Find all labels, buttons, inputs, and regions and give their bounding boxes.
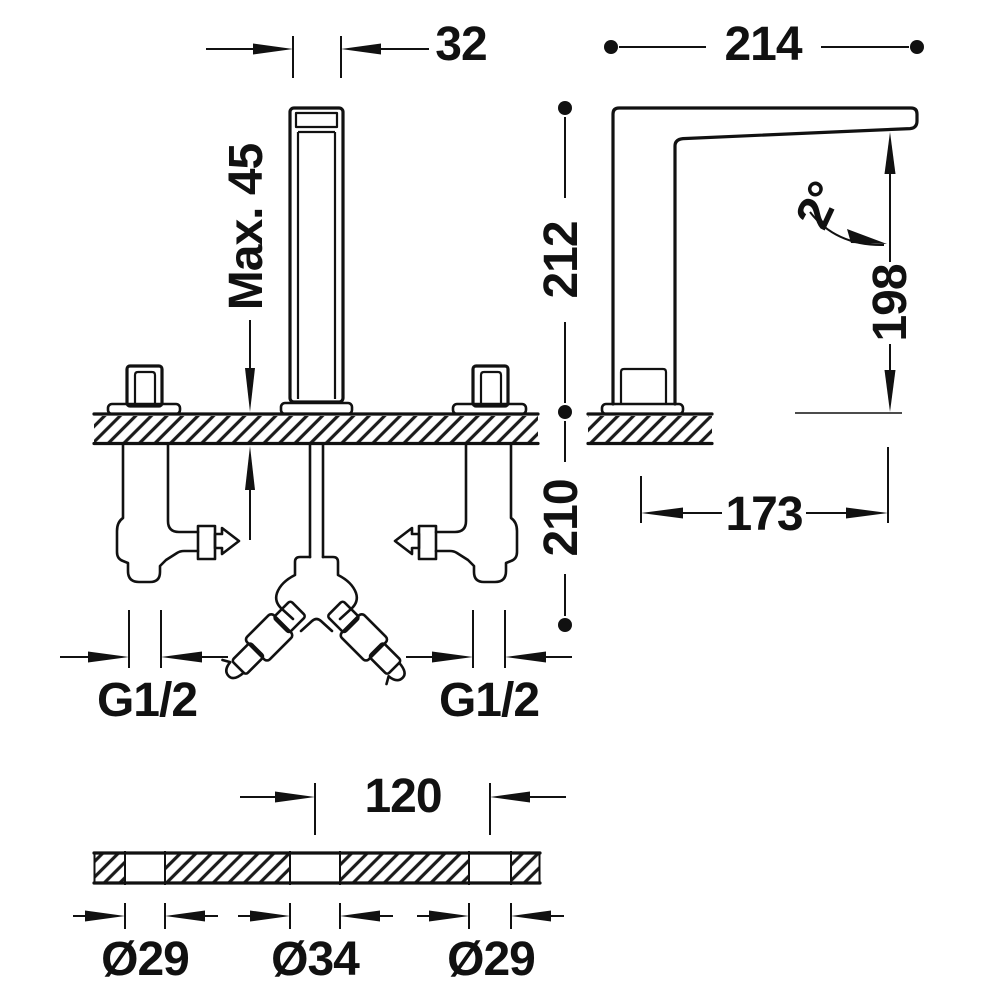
technical-drawing-page: 32 Max. 45 <box>0 0 1000 1000</box>
overall-depth-label: 214 <box>724 18 802 71</box>
countertop-side <box>588 414 712 444</box>
spout-angle-label: 2° <box>786 174 853 236</box>
valve-right-under-counter <box>395 444 517 582</box>
faucet-dimension-drawing: 32 Max. 45 <box>0 0 1000 1000</box>
plan-view: 120 Ø29 <box>73 770 566 986</box>
front-view: 32 Max. 45 <box>60 18 572 727</box>
dim-depth-below-deck: 210 <box>535 421 588 632</box>
dim-hole-dia-center: Ø34 <box>238 903 393 986</box>
y-connector-arm-right <box>323 597 415 689</box>
dim-spout-reach: 173 <box>641 447 888 541</box>
depth-below-deck-label: 210 <box>535 479 588 556</box>
thread-left-label: G1/2 <box>97 674 197 727</box>
dim-spout-angle: 2° <box>786 174 887 245</box>
dim-overall-depth: 214 <box>604 18 924 71</box>
dim-hole-dia-left: Ø29 <box>73 903 218 986</box>
dim-thread-size-left: G1/2 <box>60 610 228 727</box>
dim-max-deck-thickness: Max. 45 <box>220 143 273 540</box>
spout-front <box>281 108 352 414</box>
spout-base-plate <box>281 403 352 414</box>
faucet-side-profile <box>602 108 917 414</box>
dim-hole-dia-right: Ø29 <box>417 903 564 986</box>
spout-width-label: 32 <box>435 18 486 71</box>
flow-arrow-icon <box>395 528 419 554</box>
flow-arrow-icon <box>215 528 239 554</box>
handle-left-front <box>108 366 180 414</box>
thread-right-label: G1/2 <box>439 674 539 727</box>
dim-thread-size-right: G1/2 <box>406 610 572 727</box>
dim-height-above-deck: 212 <box>535 101 588 419</box>
side-view: 214 212 210 <box>535 18 924 632</box>
handle-right-front <box>453 366 526 414</box>
hole-dia-center-label: Ø34 <box>271 933 360 986</box>
dim-hole-spacing: 120 <box>240 770 566 835</box>
hole-dia-left-label: Ø29 <box>101 933 189 986</box>
valve-left-under-counter <box>117 444 239 582</box>
countertop-front <box>94 414 538 444</box>
outlet-height-label: 198 <box>864 264 917 341</box>
hole-dia-right-label: Ø29 <box>447 933 535 986</box>
spout-reach-label: 173 <box>725 488 802 541</box>
dim-spout-width: 32 <box>206 18 487 78</box>
dim-outlet-height: 198 <box>795 132 917 413</box>
deck-section-strip <box>94 851 540 885</box>
hole-spacing-label: 120 <box>364 770 441 823</box>
height-above-deck-label: 212 <box>535 221 588 298</box>
max-deck-label: Max. 45 <box>220 143 273 310</box>
y-connector-arm-left <box>218 596 310 688</box>
